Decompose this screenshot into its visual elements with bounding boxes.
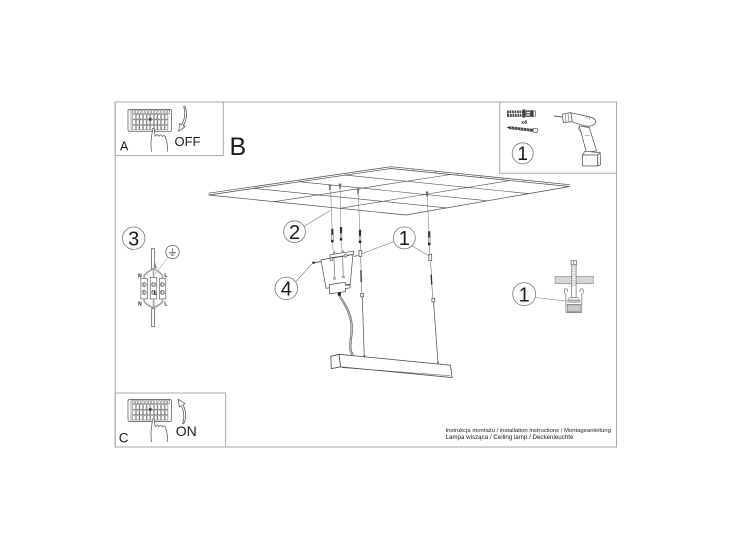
- svg-text:N: N: [138, 273, 142, 279]
- svg-text:L: L: [164, 302, 167, 308]
- svg-text:L: L: [154, 291, 157, 297]
- svg-text:x4: x4: [521, 120, 527, 126]
- svg-text:2: 2: [289, 222, 300, 244]
- svg-text:1: 1: [399, 228, 410, 250]
- svg-text:N: N: [138, 302, 142, 308]
- svg-text:1: 1: [517, 144, 528, 165]
- svg-text:1: 1: [519, 284, 530, 306]
- svg-text:OFF: OFF: [175, 134, 201, 149]
- svg-text:B: B: [230, 133, 247, 161]
- svg-text:4: 4: [281, 279, 292, 301]
- svg-text:Lampa wisząca / Ceiling lamp /: Lampa wisząca / Ceiling lamp / Deckenleu…: [446, 434, 574, 441]
- svg-text:ON: ON: [176, 423, 197, 439]
- svg-text:3: 3: [128, 228, 139, 250]
- svg-text:L: L: [154, 263, 157, 269]
- svg-text:L: L: [164, 273, 167, 279]
- svg-text:C: C: [119, 430, 129, 445]
- svg-text:A: A: [120, 139, 129, 153]
